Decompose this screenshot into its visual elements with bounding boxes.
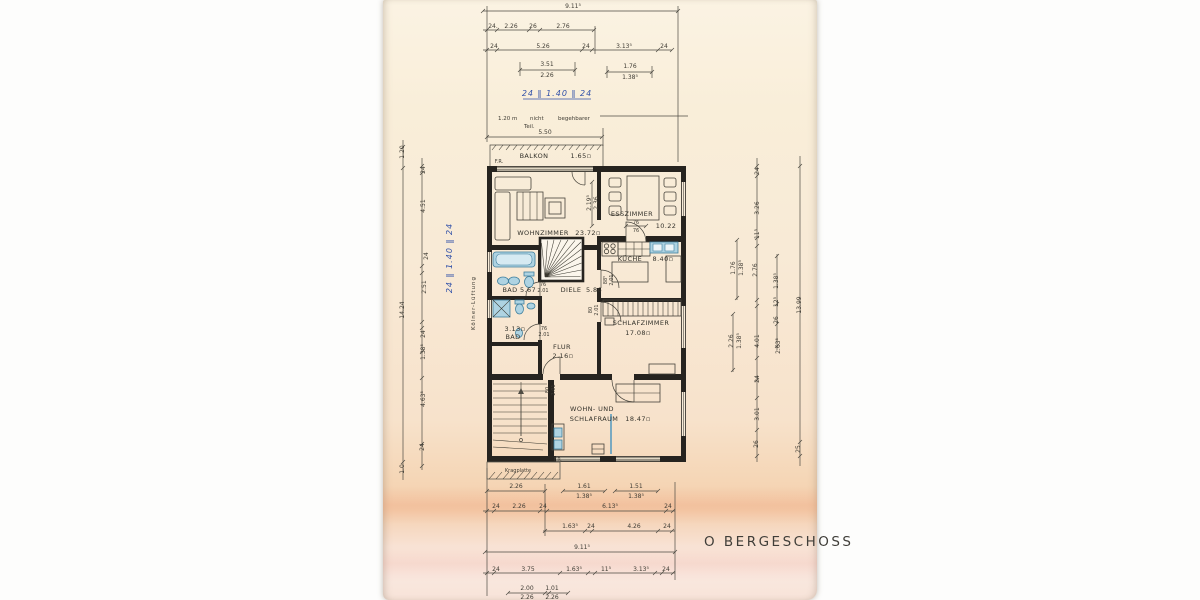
dim-label: 1.38⁵ (622, 74, 638, 81)
door-size-label: 2.01 (538, 332, 549, 338)
dim-label: 11⁵ (601, 566, 612, 573)
dim-label: 2.63⁵ (775, 338, 782, 354)
dim-label: 26 (773, 316, 780, 324)
dim-label: 24 (754, 375, 761, 383)
dim-label: 1.76 (730, 261, 737, 275)
sheet-title: O BERGESCHOSS (704, 534, 854, 550)
dim-label: 2.00 (520, 585, 534, 592)
dim-label: 6.13⁵ (602, 503, 618, 510)
dim-label: 2.26 (509, 483, 523, 490)
dim-label: 13.99 (796, 296, 803, 313)
dim-label: 9.11⁵ (574, 544, 590, 551)
handwritten-note: 24 ‖ 1.40 ‖ 24 (522, 89, 592, 98)
dim-label: 25 (795, 445, 802, 453)
dim-label: 3.01 (754, 407, 761, 421)
dim-label: 2.19⁵ (586, 195, 593, 211)
door-size-label: 76 (633, 228, 639, 234)
attic-note: 1.20 m (498, 116, 517, 122)
dim-label: 2.26 (504, 23, 518, 30)
dim-label: 24 (492, 566, 500, 573)
room-area: 1.65▫ (571, 152, 592, 160)
room-name: ESSZIMMER (611, 210, 653, 218)
attic-note: begehbarer (558, 116, 591, 122)
room-name: DIELE (561, 286, 582, 294)
room-name: KÜCHE (618, 254, 642, 263)
dim-label: 4.26 (627, 523, 641, 530)
dim-label: 24. (488, 23, 498, 30)
dim-label: 1.0 (399, 464, 406, 474)
dim-label: 4.63⁵ (420, 391, 427, 407)
room-name: WOHN- UND (570, 405, 614, 413)
handwritten-note: 24 ‖ 1.40 ‖ 24 (445, 223, 454, 293)
dim-label: 24 (664, 503, 672, 510)
dim-label: 1.38⁵ (773, 273, 780, 289)
dim-label: 24 (539, 503, 547, 510)
dim-label: 3.13⁵ (633, 566, 649, 573)
room-area: 8.40▫ (653, 255, 674, 263)
dim-label: 26 (529, 23, 537, 30)
room-area: 10.22 (656, 222, 677, 230)
room-area: 3.13▫ (505, 325, 526, 333)
fr-label: F.R. (495, 159, 504, 165)
room-name: BAD (502, 286, 517, 294)
dim-label: 24 (419, 443, 426, 451)
dim-label: 2.26 (545, 594, 559, 600)
dim-label: 24 (420, 166, 427, 174)
room-area: 2.16▫ (553, 352, 574, 360)
dim-label: 4.51 (420, 199, 427, 213)
door-size-label: 2.01 (551, 384, 557, 395)
dim-label: 1.63⁵ (566, 566, 582, 573)
dim-label: 1.38⁵ (420, 344, 427, 360)
dim-label: 9.11⁵ (565, 3, 581, 10)
dim-label: 1.76 (623, 63, 637, 70)
room-name: FLUR (553, 343, 571, 351)
dim-label: 26 (753, 440, 760, 448)
dim-label: 24 (582, 43, 590, 50)
dim-label: 24 (662, 566, 670, 573)
room-area: 18.47▫ (625, 415, 650, 423)
dim-label: 1.38⁵ (736, 333, 743, 349)
room-name: SCHLAFRAUM (570, 415, 619, 423)
dim-label: 11⁵ (754, 228, 761, 239)
dim-label: 2.26 (540, 72, 554, 79)
kragplatte-label: Kragplatte (505, 468, 531, 474)
room-name: BAD (505, 333, 520, 341)
dim-label: 2.76 (556, 23, 570, 30)
scanned-floor-plan-sheet: 9.11⁵ 24. 2.26 26 2.76 24 5.26 24 3.13⁵ … (0, 0, 1200, 600)
dim-label: 2.26 (520, 594, 534, 600)
dim-label: 12⁵ (773, 296, 780, 307)
dim-label: 2.26 (728, 334, 735, 348)
dim-label: 3.75 (521, 566, 535, 573)
dim-label: 2.36 (593, 196, 600, 210)
dim-label: 1.61 (577, 483, 591, 490)
dim-label: 1.63⁵ (562, 523, 578, 530)
door-size-label: 2.01 (609, 274, 615, 285)
dim-label: 2.26 (512, 503, 526, 510)
door-size-label: 2.01 (537, 288, 548, 294)
dim-label: 3.13⁵ (616, 43, 632, 50)
door-size-label: 2.01 (594, 304, 600, 315)
dim-label: 2.51 (421, 280, 428, 294)
bottom-dimensions: 2.26 1.61 1.38⁵ 1.51 1.38⁵ 24 2.26 24 6.… (492, 483, 672, 600)
room-area: 23.72▫ (575, 229, 600, 237)
schlafzimmer-furniture (603, 300, 681, 374)
spiral-staircase (540, 238, 583, 281)
dim-label: 5.26 (536, 43, 550, 50)
dim-label: 24 (423, 252, 430, 260)
left-dimensions: 1.20 24 4.51 24 2.51 24 1.38⁵ 14.24 4.63… (399, 145, 477, 474)
dim-label: 24 (420, 330, 427, 338)
dim-label: 24 (754, 167, 761, 175)
dim-label: 14.24 (399, 301, 406, 318)
dim-label: 5.50 (538, 129, 552, 136)
room-name: SCHLAFZIMMER (613, 319, 670, 327)
dim-label: 3.51 (540, 61, 554, 68)
dim-label: 1.38⁵ (738, 260, 745, 276)
dim-label: 24 (660, 43, 668, 50)
door-size-label: 76 (633, 220, 639, 226)
room-name: BALKON (520, 152, 549, 160)
dim-label: 2.76 (752, 263, 759, 277)
dim-label: 3.26 (754, 201, 761, 215)
room-name: WOHNZIMMER (517, 229, 569, 237)
right-dimensions: 24 3.26 11⁵ 2.76 1.76 1.38⁵ 1.38⁵ 12⁵ 26… (728, 167, 803, 453)
attic-note: nicht (530, 116, 545, 122)
dim-label: 1.38⁵ (576, 493, 592, 500)
shaft-label: Kölner-Lüftung (471, 276, 477, 330)
fr-label: F.R. (554, 457, 563, 463)
staircase (493, 382, 547, 450)
dim-label: 24 (492, 503, 500, 510)
dim-label: 1.38⁵ (628, 493, 644, 500)
dim-label: 4.01 (754, 334, 761, 348)
dim-label: 1.20 (399, 145, 406, 159)
dim-label: 24 (490, 43, 498, 50)
dim-label: 1.01 (545, 585, 559, 592)
attic-note: Teil. (523, 124, 535, 130)
dim-label: 24 (587, 523, 595, 530)
room-area: 5.86 (586, 286, 602, 294)
dim-label: 24 (663, 523, 671, 530)
room-area: 5.67 (520, 286, 536, 294)
room-area: 17.08▫ (625, 329, 650, 337)
floor-plan-drawing: 9.11⁵ 24. 2.26 26 2.76 24 5.26 24 3.13⁵ … (0, 0, 1200, 600)
bad-oben-fixtures (493, 252, 535, 288)
inner-dimensions: 2.19⁵ 2.36 76 2.01 76 2.01 88⁵ 2.01 80 2… (537, 195, 639, 396)
dim-label: 1.51 (629, 483, 643, 490)
